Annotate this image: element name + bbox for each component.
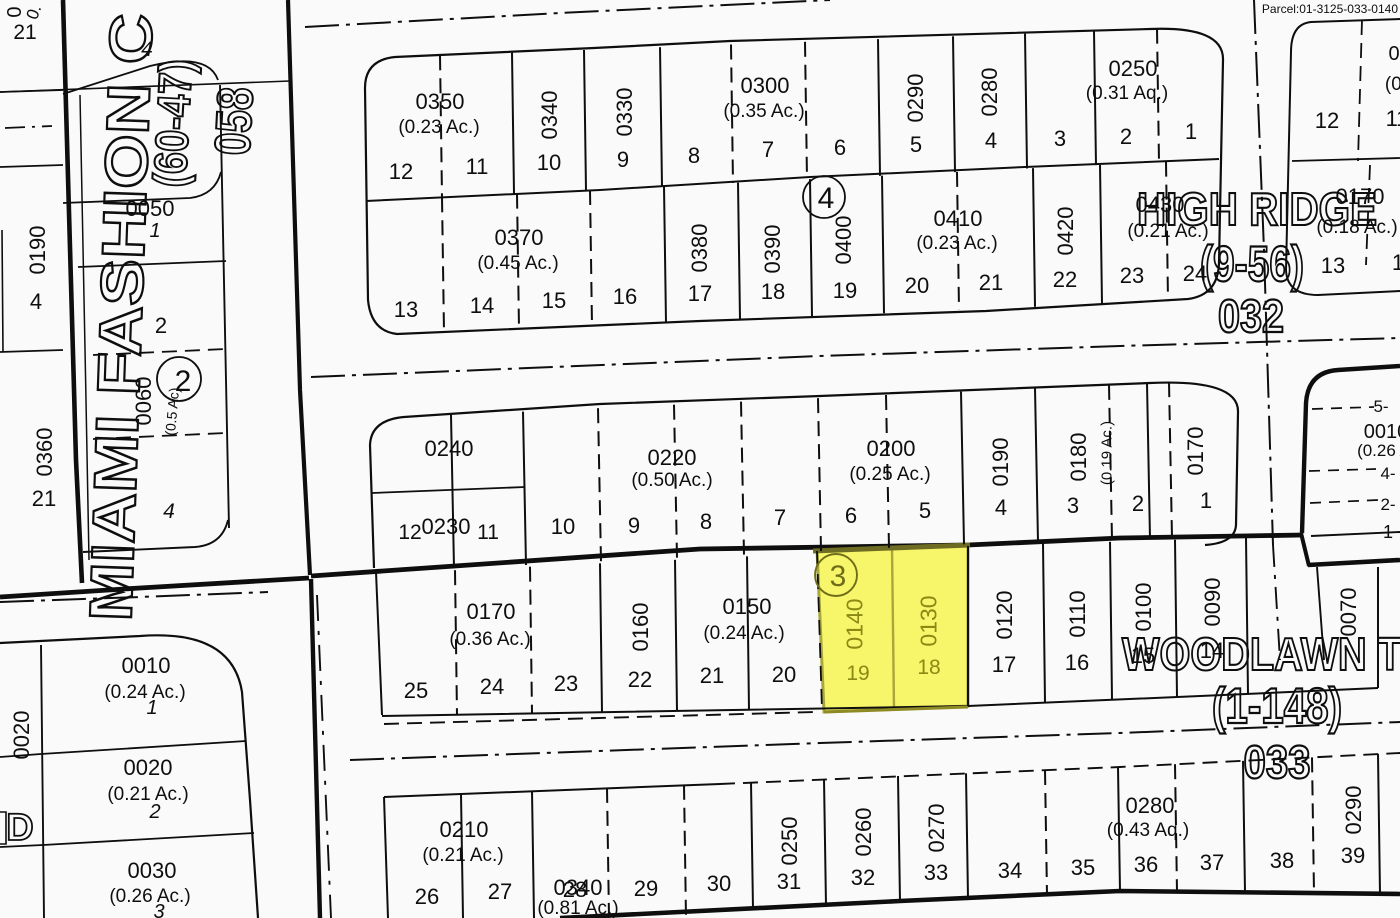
svg-text:0170: 0170: [467, 599, 516, 624]
svg-text:18: 18: [917, 656, 940, 679]
svg-text:0130: 0130: [915, 595, 941, 646]
svg-text:25: 25: [404, 678, 428, 703]
svg-text:12: 12: [398, 521, 421, 544]
svg-text:12: 12: [1315, 108, 1339, 133]
svg-text:3: 3: [1067, 493, 1079, 518]
svg-text:(0.: (0.: [1385, 74, 1400, 95]
svg-text:0360: 0360: [32, 428, 57, 477]
svg-text:1: 1: [1383, 522, 1393, 542]
svg-text:21: 21: [700, 663, 724, 688]
svg-text:13: 13: [1321, 253, 1345, 278]
svg-text:1: 1: [1200, 488, 1212, 513]
svg-text:1: 1: [146, 697, 157, 719]
svg-text:27: 27: [488, 879, 512, 904]
svg-text:(0.50 Ac.): (0.50 Ac.): [631, 470, 712, 491]
svg-text:0290: 0290: [1341, 786, 1366, 835]
svg-text:33: 33: [924, 860, 948, 885]
svg-text:19: 19: [833, 278, 857, 303]
svg-text:21: 21: [979, 270, 1003, 295]
svg-text:20: 20: [772, 662, 796, 687]
svg-text:34: 34: [998, 858, 1022, 883]
svg-text:2: 2: [1132, 491, 1144, 516]
svg-text:4: 4: [30, 289, 42, 314]
svg-text:0100: 0100: [1131, 583, 1156, 632]
svg-text:20: 20: [905, 273, 929, 298]
svg-text:38: 38: [1270, 848, 1294, 873]
svg-text:032: 032: [1218, 290, 1284, 342]
svg-text:5-: 5-: [1373, 397, 1388, 416]
svg-text:0420: 0420: [1053, 207, 1078, 256]
svg-text:(0.35 Ac.): (0.35 Ac.): [723, 101, 804, 122]
svg-text:18: 18: [761, 279, 785, 304]
svg-text:0250: 0250: [1109, 56, 1158, 81]
svg-text:0230: 0230: [422, 514, 471, 539]
svg-text:0380: 0380: [687, 224, 712, 273]
svg-text:(0.31 Aq.): (0.31 Aq.): [1086, 83, 1168, 104]
svg-text:22: 22: [628, 667, 652, 692]
svg-text:2: 2: [1120, 124, 1132, 149]
svg-text:11: 11: [477, 521, 499, 544]
svg-text:26: 26: [415, 884, 439, 909]
svg-text:(0.43 Aq.): (0.43 Aq.): [1107, 820, 1189, 841]
svg-text:3: 3: [830, 560, 847, 593]
svg-text:(0.23 Ac.): (0.23 Ac.): [398, 117, 479, 138]
svg-text:(0.81 Ac.): (0.81 Ac.): [537, 898, 618, 918]
svg-text:(0.26 Ac.): (0.26 Ac.): [109, 886, 190, 907]
svg-text:13: 13: [394, 297, 418, 322]
svg-text:0010: 0010: [122, 653, 171, 678]
svg-text:10: 10: [551, 514, 575, 539]
svg-text:2-: 2-: [1380, 495, 1395, 514]
svg-text:0280: 0280: [1126, 793, 1175, 818]
svg-text:D: D: [6, 807, 33, 849]
svg-text:0280: 0280: [977, 68, 1002, 117]
svg-text:16: 16: [1065, 650, 1089, 675]
svg-text:9: 9: [628, 513, 640, 538]
svg-text:0300: 0300: [741, 73, 790, 98]
svg-text:0400: 0400: [831, 216, 856, 265]
svg-text:23: 23: [1120, 263, 1144, 288]
svg-text:39: 39: [1341, 843, 1365, 868]
svg-text:(0.23 Ac.): (0.23 Ac.): [916, 233, 997, 254]
svg-text:0190: 0190: [25, 226, 50, 275]
svg-text:6: 6: [834, 135, 846, 160]
svg-text:8: 8: [700, 509, 712, 534]
svg-text:058: 058: [204, 86, 263, 157]
svg-text:3: 3: [1054, 126, 1066, 151]
svg-text:(0.21 Ac.): (0.21 Ac.): [107, 784, 188, 805]
svg-text:4-: 4-: [1380, 464, 1395, 483]
svg-text:(0.45 Ac.): (0.45 Ac.): [477, 253, 558, 274]
svg-text:1: 1: [1392, 250, 1400, 275]
svg-text:(0.24 Ac.): (0.24 Ac.): [104, 682, 185, 703]
svg-text:17: 17: [688, 281, 712, 306]
svg-text:8: 8: [688, 143, 700, 168]
svg-text:0180: 0180: [1066, 433, 1091, 482]
svg-text:(1-148): (1-148): [1212, 678, 1342, 734]
svg-text:16: 16: [613, 284, 637, 309]
svg-text:0140: 0140: [841, 598, 867, 649]
svg-text:0390: 0390: [760, 225, 785, 274]
svg-text:1: 1: [1185, 119, 1197, 144]
svg-text:033: 033: [1244, 736, 1311, 788]
svg-text:6: 6: [845, 503, 857, 528]
svg-text:0120: 0120: [992, 591, 1017, 640]
svg-text:(60-47): (60-47): [143, 58, 202, 189]
svg-text:5: 5: [919, 498, 931, 523]
svg-text:WOODLAWN T: WOODLAWN T: [1122, 628, 1400, 680]
svg-text:24: 24: [480, 674, 504, 699]
svg-text:(0.24 Ac.): (0.24 Ac.): [703, 623, 784, 644]
svg-text:2: 2: [155, 313, 167, 338]
svg-text:(0.25 Ac.): (0.25 Ac.): [849, 464, 930, 485]
svg-text:0220: 0220: [648, 445, 697, 470]
svg-text:(0.19 Ac.): (0.19 Ac.): [1098, 421, 1115, 485]
svg-text:4: 4: [985, 128, 997, 153]
svg-text:21: 21: [32, 486, 56, 511]
svg-text:0020: 0020: [9, 711, 34, 760]
svg-text:17: 17: [992, 652, 1016, 677]
svg-text:(0.36 Ac.): (0.36 Ac.): [449, 629, 530, 650]
svg-text:23: 23: [554, 671, 578, 696]
svg-text:0410: 0410: [934, 206, 983, 231]
svg-text:(0.26 A: (0.26 A: [1357, 441, 1400, 460]
svg-text:7: 7: [774, 505, 786, 530]
svg-text:0330: 0330: [612, 88, 637, 137]
svg-text:36: 36: [1134, 852, 1158, 877]
svg-text:2: 2: [148, 801, 160, 823]
svg-text:0090: 0090: [1200, 578, 1225, 627]
svg-text:11: 11: [1386, 106, 1400, 131]
svg-text:0110: 0110: [1065, 590, 1090, 637]
svg-text:15: 15: [542, 288, 566, 313]
svg-text:0260: 0260: [851, 808, 876, 857]
svg-text:HIGH RIDGE: HIGH RIDGE: [1137, 183, 1377, 235]
svg-text:5: 5: [910, 132, 922, 157]
svg-text:0350: 0350: [416, 89, 465, 114]
svg-text:3: 3: [153, 901, 164, 918]
svg-text:0010: 0010: [1364, 421, 1400, 443]
svg-text:7: 7: [762, 137, 774, 162]
svg-text:(0.21 Ac.): (0.21 Ac.): [422, 845, 503, 866]
svg-text:4: 4: [163, 500, 175, 523]
svg-text:0020: 0020: [124, 755, 173, 780]
svg-text:0290: 0290: [903, 74, 928, 123]
svg-text:0340: 0340: [554, 875, 603, 900]
svg-text:Parcel:01-3125-033-0140: Parcel:01-3125-033-0140: [1262, 2, 1398, 16]
svg-text:0250: 0250: [777, 817, 802, 866]
svg-text:0200: 0200: [867, 436, 916, 461]
svg-text:21: 21: [13, 21, 36, 44]
svg-text:0160: 0160: [628, 603, 653, 652]
svg-text:4: 4: [995, 495, 1007, 520]
svg-text:32: 32: [851, 865, 875, 890]
svg-text:19: 19: [846, 662, 869, 685]
svg-text:0: 0: [1388, 43, 1399, 65]
svg-text:0370: 0370: [495, 225, 544, 250]
svg-text:9: 9: [617, 147, 629, 172]
svg-text:12: 12: [389, 159, 413, 184]
svg-text:0150: 0150: [723, 594, 772, 619]
svg-text:11: 11: [466, 154, 489, 179]
svg-text:10: 10: [537, 150, 561, 175]
svg-text:31: 31: [777, 869, 801, 894]
svg-text:35: 35: [1071, 855, 1095, 880]
svg-text:0270: 0270: [924, 804, 949, 853]
svg-text:0170: 0170: [1183, 427, 1208, 476]
svg-text:30: 30: [707, 871, 731, 896]
svg-text:22: 22: [1053, 267, 1077, 292]
svg-text:29: 29: [634, 876, 658, 901]
svg-text:0240: 0240: [425, 436, 474, 461]
svg-text:4: 4: [818, 182, 835, 215]
svg-text:37: 37: [1200, 850, 1224, 875]
svg-text:14: 14: [470, 293, 494, 318]
svg-text:0190: 0190: [988, 438, 1013, 487]
svg-text:0340: 0340: [537, 91, 562, 140]
svg-text:0030: 0030: [128, 858, 177, 883]
svg-text:(9-56): (9-56): [1200, 236, 1304, 292]
svg-text:0210: 0210: [440, 817, 489, 842]
